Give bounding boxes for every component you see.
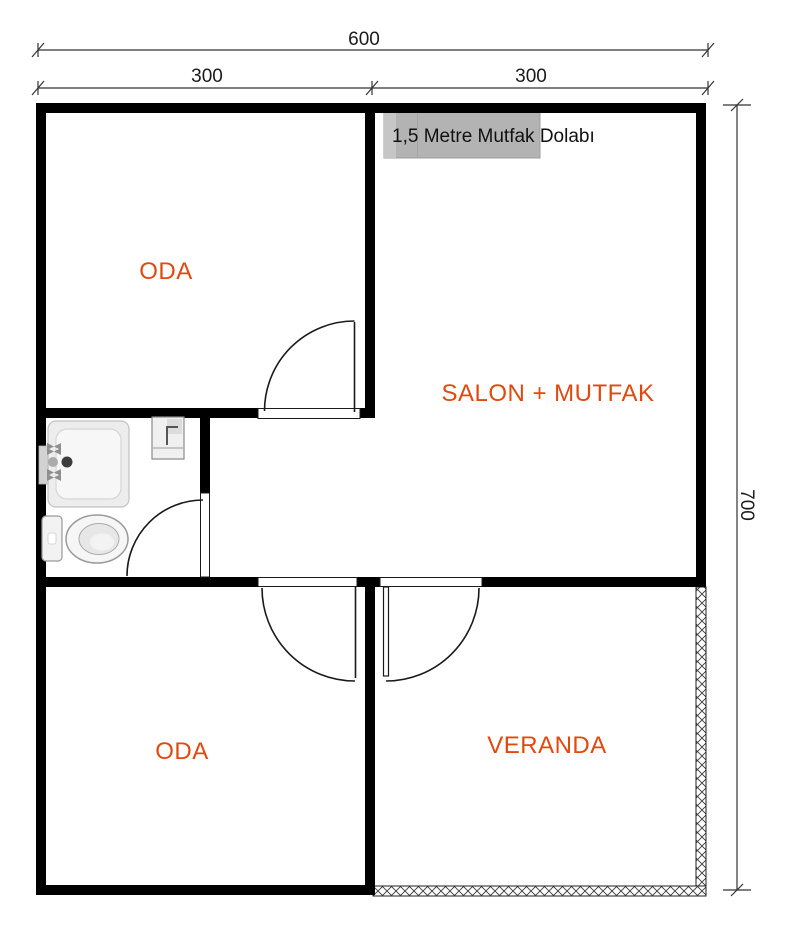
dimension-total-width-label: 600 — [348, 29, 380, 50]
room-label-salon: SALON + MUTFAK — [441, 380, 654, 407]
room-label-bottom-oda: ODA — [155, 738, 209, 765]
door-swing-arc — [262, 588, 355, 681]
shower-tray — [39, 421, 129, 507]
shower-mixer — [48, 457, 58, 467]
dimension-left-span-label: 300 — [191, 66, 223, 87]
dimension-width-spans — [32, 81, 714, 95]
interior-walls — [36, 103, 706, 895]
kitchen-cabinet-label: 1,5 Metre Mutfak Dolabı — [392, 126, 595, 147]
floor-plan-canvas: 600 300 300 700 1,5 Metre Mutfak Dolabı — [0, 0, 794, 946]
dimension-height-label: 700 — [736, 489, 757, 521]
door-swing-arc — [127, 500, 203, 576]
room-label-top-oda: ODA — [139, 258, 193, 285]
toilet — [42, 515, 128, 563]
door-veranda — [380, 578, 482, 682]
door-swing-arc — [265, 321, 355, 411]
room-label-veranda: VERANDA — [487, 732, 607, 759]
dimension-right-span-label: 300 — [515, 66, 547, 87]
door-bathroom — [127, 493, 210, 577]
door-bottom-oda — [258, 578, 357, 682]
floor-plan-page: 600 300 300 700 1,5 Metre Mutfak Dolabı — [0, 0, 794, 946]
door-swing-arc — [386, 588, 479, 681]
washbasin — [152, 417, 184, 459]
door-top-oda — [258, 321, 360, 419]
shower-valve-plate — [39, 446, 48, 484]
shower-drain — [62, 457, 73, 468]
